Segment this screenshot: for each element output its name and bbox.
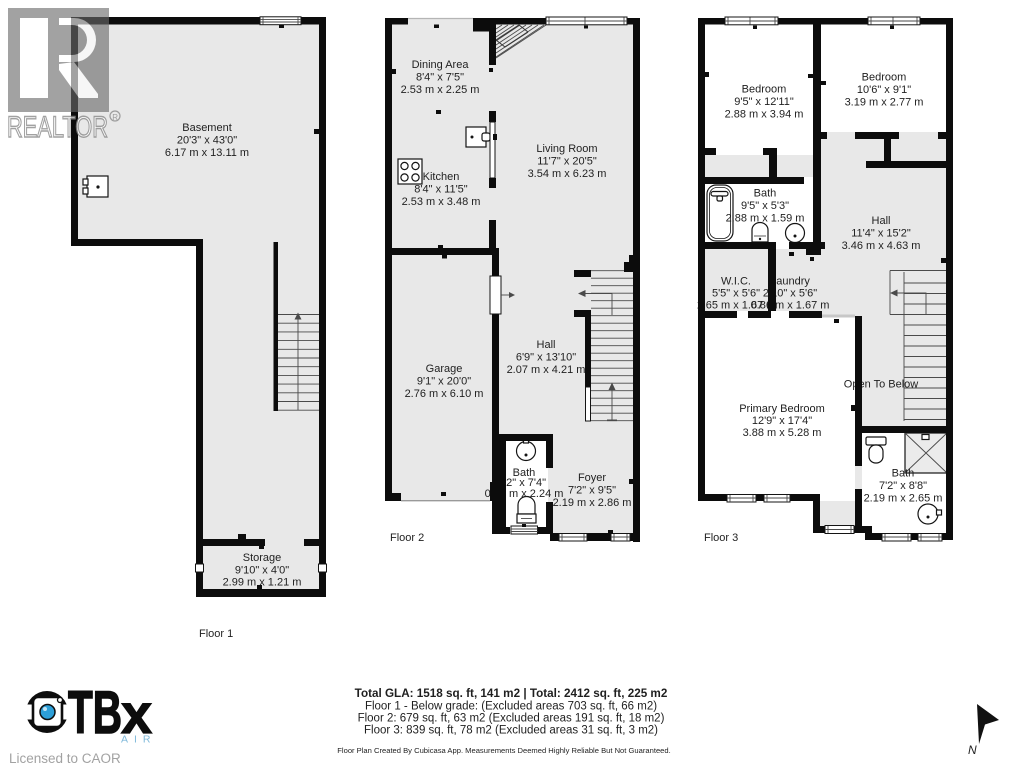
svg-text:7'2" x 9'5": 7'2" x 9'5" [568,485,616,497]
svg-text:Garage: Garage [426,363,463,375]
svg-text:6'9" x 13'10": 6'9" x 13'10" [516,352,576,364]
svg-text:Floor 2: Floor 2 [390,532,424,544]
svg-text:Total GLA: 1518 sq. ft, 141 m2: Total GLA: 1518 sq. ft, 141 m2 | Total: … [355,687,668,700]
svg-text:Primary Bedroom: Primary Bedroom [739,403,825,415]
svg-text:10'6" x 9'1": 10'6" x 9'1" [857,84,911,96]
svg-text:2.88 m x 3.94 m: 2.88 m x 3.94 m [725,109,804,121]
svg-text:20'3" x 43'0": 20'3" x 43'0" [177,135,237,147]
svg-text:3.46 m x 4.63 m: 3.46 m x 4.63 m [842,240,921,252]
svg-text:Living Room: Living Room [536,143,597,155]
svg-text:3.19 m x 2.77 m: 3.19 m x 2.77 m [845,97,924,109]
svg-text:2.76 m x 6.10 m: 2.76 m x 6.10 m [405,388,484,400]
svg-text:Licensed to CAOR: Licensed to CAOR [9,751,121,766]
svg-text:8'4" x 11'5": 8'4" x 11'5" [414,184,467,196]
svg-text:7'2" x 8'8": 7'2" x 8'8" [879,480,927,492]
svg-text:Bedroom: Bedroom [742,84,787,96]
svg-text:0.86 m x 1.67 m: 0.86 m x 1.67 m [751,300,830,312]
svg-text:Basement: Basement [182,122,232,134]
svg-text:2.19 m x 2.86 m: 2.19 m x 2.86 m [553,497,632,509]
svg-text:TB: TB [68,679,122,746]
svg-text:R: R [112,113,118,122]
svg-text:Floor 3: Floor 3 [704,532,738,544]
svg-text:12'9" x 17'4": 12'9" x 17'4" [752,415,812,427]
svg-text:Bath: Bath [754,188,777,200]
svg-text:Hall: Hall [872,215,891,227]
svg-text:Hall: Hall [537,339,556,351]
svg-text:Floor 2: 679 sq. ft, 63 m2 (Ex: Floor 2: 679 sq. ft, 63 m2 (Excluded are… [358,713,665,725]
svg-text:Floor 3: 839 sq. ft, 78 m2 (Ex: Floor 3: 839 sq. ft, 78 m2 (Excluded are… [364,725,658,737]
svg-text:Foyer: Foyer [578,472,606,484]
svg-text:Storage: Storage [243,552,282,564]
svg-text:Dining Area: Dining Area [412,59,470,71]
svg-text:Bedroom: Bedroom [862,72,907,84]
svg-text:8'4" x 7'5": 8'4" x 7'5" [416,72,464,84]
svg-text:3.54 m x 6.23 m: 3.54 m x 6.23 m [528,168,607,180]
svg-text:REALTOR: REALTOR [7,111,108,144]
svg-text:11'7" x 20'5": 11'7" x 20'5" [537,156,597,168]
svg-text:N: N [968,743,977,757]
svg-text:2.07 m x 4.21 m: 2.07 m x 4.21 m [507,364,586,376]
svg-text:W.I.C.: W.I.C. [721,276,751,288]
svg-text:6.17 m x 13.11 m: 6.17 m x 13.11 m [165,147,249,159]
svg-text:2.19 m x 2.65 m: 2.19 m x 2.65 m [864,493,943,505]
svg-text:2.88 m x 1.59 m: 2.88 m x 1.59 m [726,213,805,225]
svg-text:Bath: Bath [892,468,915,480]
svg-text:Floor 1 - Below grade: (Exclud: Floor 1 - Below grade: (Excluded areas 7… [365,701,657,713]
svg-text:5'5" x 5'6": 5'5" x 5'6" [712,288,760,300]
svg-text:9'5" x 5'3": 9'5" x 5'3" [741,200,789,212]
svg-text:11'4" x 15'2": 11'4" x 15'2" [851,228,911,240]
svg-text:Laundry: Laundry [770,276,810,288]
svg-text:Kitchen: Kitchen [423,171,460,183]
svg-text:3.88 m x 5.28 m: 3.88 m x 5.28 m [743,427,822,439]
svg-text:2.53 m x 2.25 m: 2.53 m x 2.25 m [401,84,480,96]
svg-text:Open To Below: Open To Below [844,379,918,391]
svg-text:2.53 m x 3.48 m: 2.53 m x 3.48 m [402,196,481,208]
svg-text:Floor Plan Created By Cubicasa: Floor Plan Created By Cubicasa App. Meas… [337,746,670,755]
svg-text:9'5" x 12'11": 9'5" x 12'11" [734,96,794,108]
svg-text:Floor 1: Floor 1 [199,628,233,640]
svg-text:9'1" x 20'0": 9'1" x 20'0" [417,376,471,388]
svg-text:9'10" x 4'0": 9'10" x 4'0" [235,565,289,577]
svg-text:AIR: AIR [121,734,157,746]
